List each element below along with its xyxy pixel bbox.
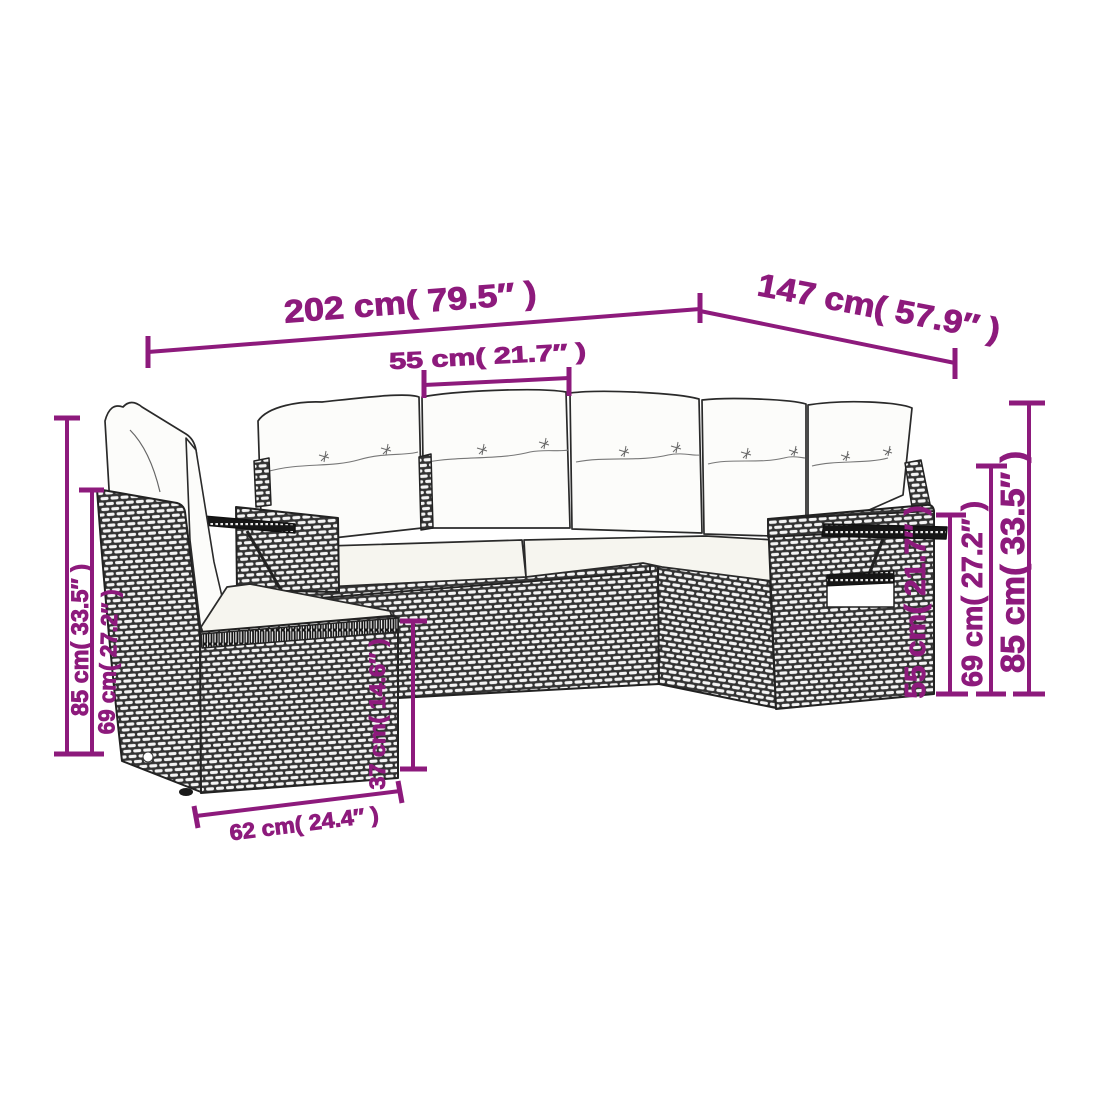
svg-text:85 cm( 33.5″ ): 85 cm( 33.5″ ) <box>67 564 94 716</box>
svg-text:37 cm( 14.6″ ): 37 cm( 14.6″ ) <box>365 639 390 790</box>
svg-text:85 cm( 33.5″ ): 85 cm( 33.5″ ) <box>994 451 1031 673</box>
svg-text:69 cm( 27.2″ ): 69 cm( 27.2″ ) <box>957 501 989 687</box>
svg-text:55 cm( 21.7″ ): 55 cm( 21.7″ ) <box>900 506 932 699</box>
svg-text:69 cm( 27.2″ ): 69 cm( 27.2″ ) <box>93 589 123 735</box>
